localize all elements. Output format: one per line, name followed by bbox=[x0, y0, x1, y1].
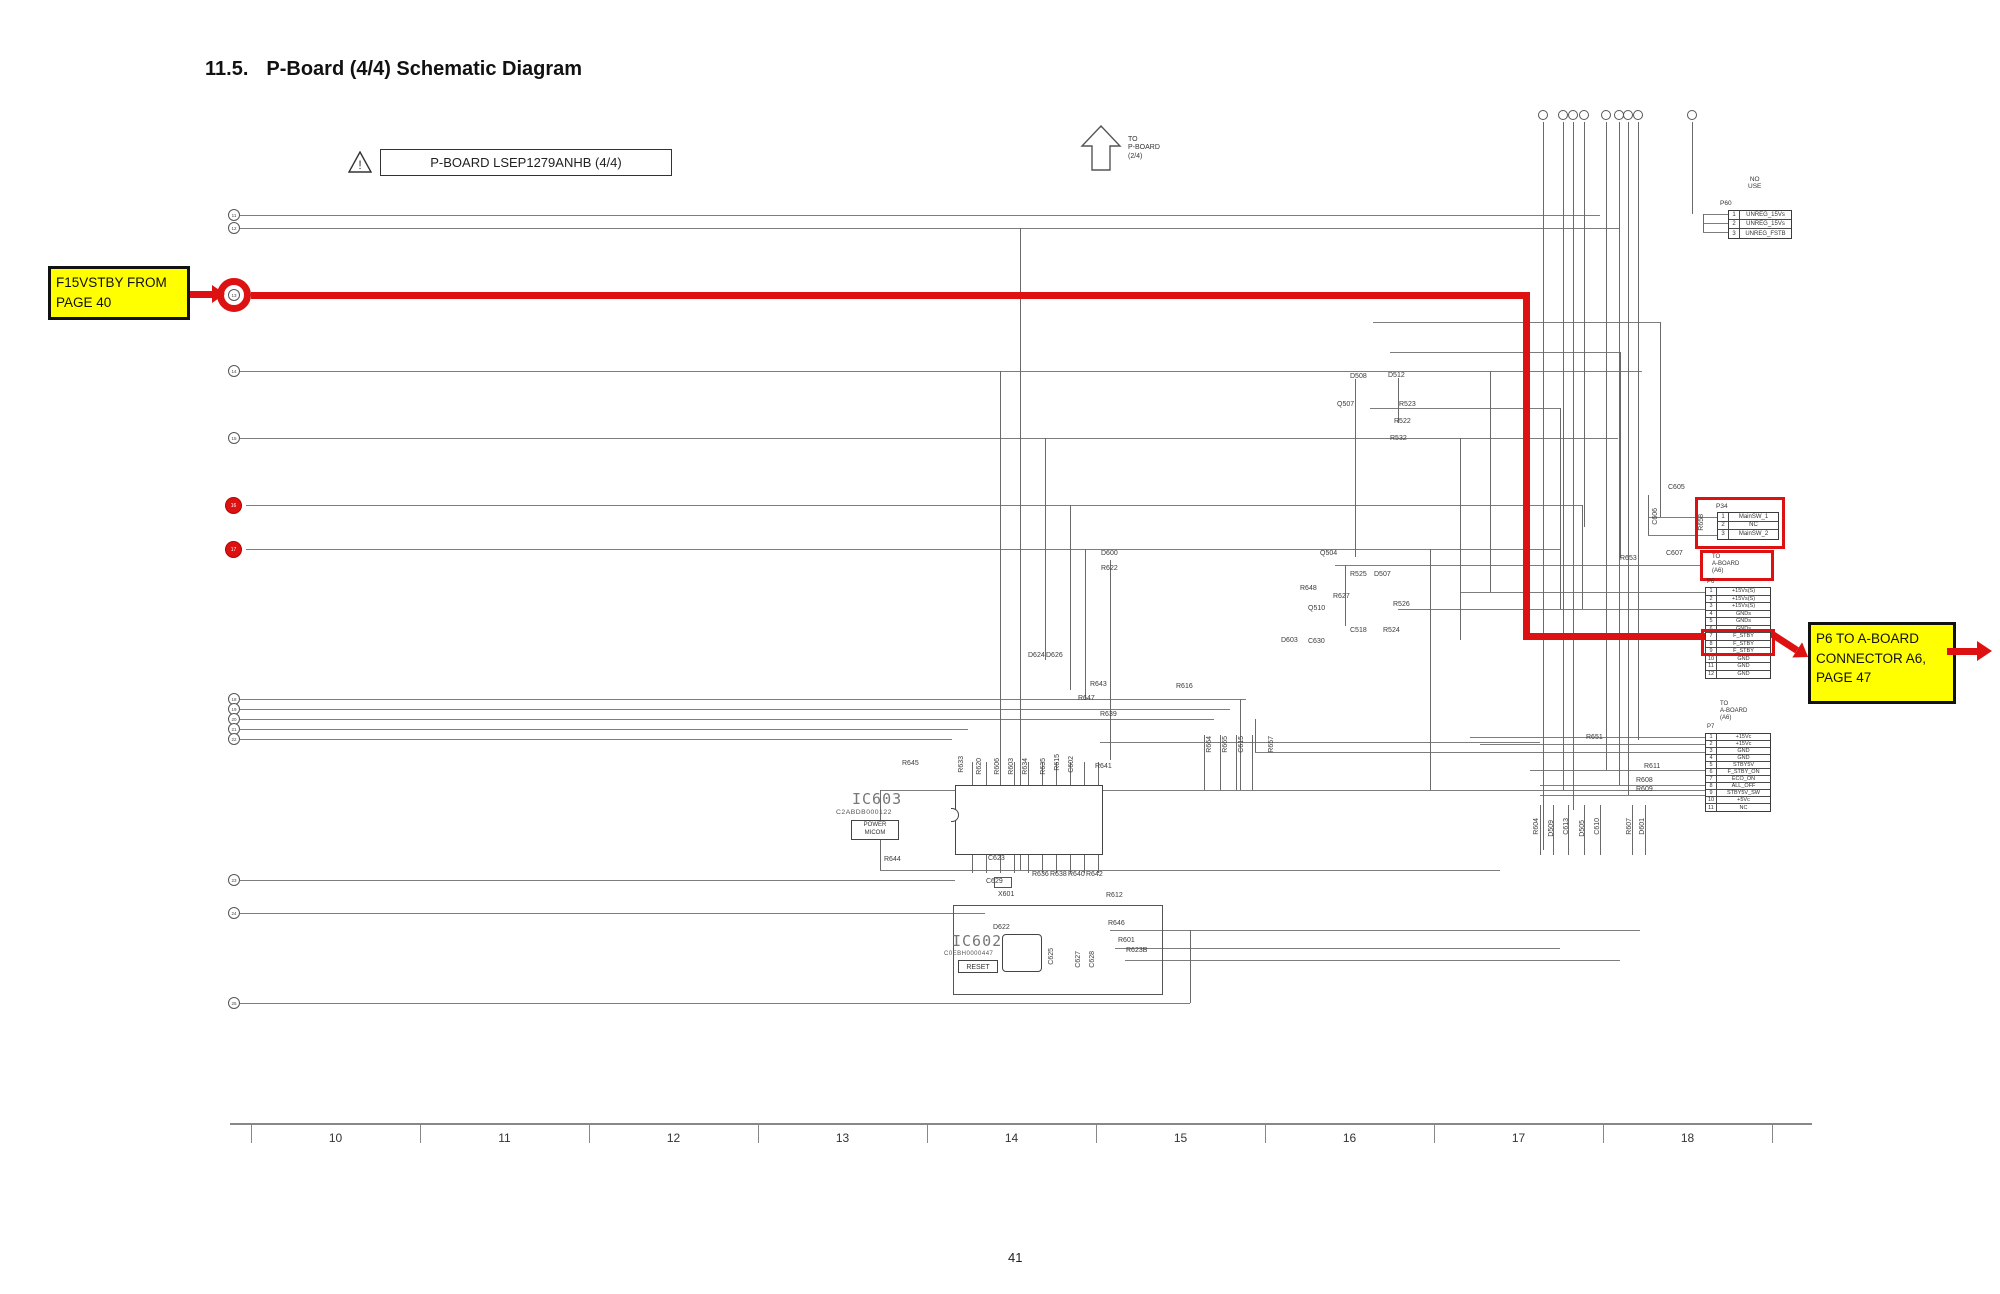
component-label: R639 bbox=[1100, 711, 1117, 718]
pin-number: 1 bbox=[1706, 734, 1717, 740]
wire bbox=[1703, 214, 1704, 232]
pin-number: 3 bbox=[1718, 530, 1729, 539]
wire bbox=[240, 729, 968, 730]
wire bbox=[1480, 744, 1705, 745]
wire bbox=[246, 505, 1582, 506]
connector-row: 4GNDs bbox=[1706, 611, 1770, 619]
signal-name: +15Vc bbox=[1717, 741, 1770, 747]
wire bbox=[1070, 505, 1071, 690]
wire-ref-circle bbox=[1687, 110, 1697, 120]
wire bbox=[1115, 948, 1560, 949]
wire-ref-circle: 25 bbox=[228, 997, 240, 1009]
wire bbox=[1236, 735, 1237, 790]
p6-dest-label: TOA-BOARD(A6) bbox=[1712, 554, 1739, 575]
wire bbox=[246, 549, 1560, 550]
p60-name: P60 bbox=[1720, 200, 1732, 207]
component-label: R648 bbox=[1300, 585, 1317, 592]
crystal-x601 bbox=[994, 877, 1012, 888]
pin-number: 4 bbox=[1706, 611, 1717, 618]
p6-rows-7-9-highlight bbox=[1701, 629, 1775, 656]
component-label: R524 bbox=[1383, 627, 1400, 634]
pin-number: 1 bbox=[1706, 588, 1717, 595]
pin-number: 3 bbox=[1706, 603, 1717, 610]
component-label: D505 bbox=[1579, 820, 1586, 837]
component-label: R604 bbox=[1533, 818, 1540, 835]
wire-ref-circle: 16 bbox=[225, 497, 242, 514]
wire bbox=[1582, 505, 1583, 609]
component-label: C518 bbox=[1350, 627, 1367, 634]
component-label: D600 bbox=[1101, 550, 1118, 557]
ic602-function: RESET bbox=[958, 960, 998, 973]
wire bbox=[1430, 549, 1431, 790]
component-label: R523 bbox=[1399, 401, 1416, 408]
p34-name: P34 bbox=[1716, 503, 1728, 510]
connector-row: 5STBY5V bbox=[1706, 762, 1770, 769]
wire bbox=[1020, 228, 1021, 870]
component-label: R525 bbox=[1350, 571, 1367, 578]
ruler-tick bbox=[589, 1123, 590, 1143]
ruler-number: 10 bbox=[329, 1131, 342, 1145]
signal-name: +5Vc bbox=[1717, 797, 1770, 803]
signal-name: UNREG_15Vs bbox=[1740, 221, 1791, 227]
wire-ref-circle bbox=[1601, 110, 1611, 120]
connector-row: 3+15Vs(S) bbox=[1706, 603, 1770, 611]
wire bbox=[1100, 742, 1540, 743]
wire-ref-circle: 23 bbox=[228, 874, 240, 886]
schematic-page: 11.5.P-Board (4/4) Schematic Diagram ! P… bbox=[0, 0, 2000, 1294]
pin-number: 10 bbox=[1706, 656, 1717, 663]
component-label: Q504 bbox=[1320, 550, 1337, 557]
wire bbox=[1560, 408, 1561, 549]
ruler-tick bbox=[1603, 1123, 1604, 1143]
component-label: R612 bbox=[1106, 892, 1123, 899]
component-label: R647 bbox=[1078, 695, 1095, 702]
component-label: D626 bbox=[1046, 652, 1063, 659]
signal-name: STBY5V bbox=[1717, 762, 1770, 768]
component-label: D512 bbox=[1388, 372, 1405, 379]
up-arrow-icon bbox=[1080, 124, 1122, 172]
component-label: C610 bbox=[1594, 818, 1601, 835]
connector-row: 3MainSW_2 bbox=[1718, 530, 1778, 539]
signal-name: STBY5V_SW bbox=[1717, 790, 1770, 796]
signal-name: NC bbox=[1717, 805, 1770, 811]
ruler-number: 11 bbox=[498, 1131, 510, 1145]
wire bbox=[1563, 122, 1564, 790]
pin-number: 1 bbox=[1718, 513, 1729, 521]
signal-name: ECO_ON bbox=[1717, 776, 1770, 782]
wire-ref-circle: 14 bbox=[228, 365, 240, 377]
ruler-tick bbox=[251, 1123, 252, 1143]
wire-ref-circle: 15 bbox=[228, 432, 240, 444]
signal-name: +15Vs(S) bbox=[1717, 588, 1770, 594]
wire bbox=[240, 438, 1618, 439]
ic-pin-stub bbox=[986, 762, 987, 786]
wire bbox=[1255, 719, 1256, 752]
component-label: R609 bbox=[1636, 786, 1653, 793]
wire bbox=[1085, 549, 1086, 700]
highlight-line-horizontal bbox=[251, 292, 1530, 299]
pin-number: 2 bbox=[1706, 596, 1717, 603]
component-label: Q507 bbox=[1337, 401, 1354, 408]
wire bbox=[1606, 122, 1607, 770]
signal-name: UNREG_FSTB bbox=[1740, 231, 1791, 237]
wire bbox=[1540, 795, 1705, 796]
signal-name: MainSW_2 bbox=[1729, 531, 1778, 537]
p7-name: P7 bbox=[1707, 724, 1714, 731]
wire bbox=[1110, 560, 1111, 760]
ic-pin-stub bbox=[1014, 855, 1015, 873]
wire-ref-circle: 17 bbox=[225, 541, 242, 558]
ic603-function: POWERMICOM bbox=[851, 820, 899, 840]
wire bbox=[1000, 371, 1001, 790]
wire-ref-circle: 22 bbox=[228, 733, 240, 745]
wire bbox=[1390, 352, 1620, 353]
component-label: D507 bbox=[1374, 571, 1391, 578]
component-label: R645 bbox=[902, 760, 919, 767]
ruler-tick bbox=[1096, 1123, 1097, 1143]
pin-number: 9 bbox=[1706, 790, 1717, 796]
component-label: R522 bbox=[1394, 418, 1411, 425]
connector-p7-table: 1+15Vc2+15Vc3GND4GND5STBY5V6F_STBY_ON7EC… bbox=[1705, 733, 1771, 812]
component-label: R622 bbox=[1101, 565, 1118, 572]
component-label: R665 bbox=[1222, 736, 1229, 753]
to-pboard-label: TO P-BOARD (2/4) bbox=[1128, 136, 1160, 161]
ruler-number: 16 bbox=[1343, 1131, 1356, 1145]
board-label: P-BOARD LSEP1279ANHB (4/4) bbox=[380, 149, 672, 176]
component-label: C613 bbox=[1563, 818, 1570, 835]
signal-name: GND bbox=[1717, 656, 1770, 662]
wire bbox=[240, 709, 1230, 710]
wire bbox=[1638, 122, 1639, 740]
ic603-part: C2ABDB000122 bbox=[836, 809, 892, 816]
component-label: R611 bbox=[1644, 763, 1660, 770]
wire bbox=[1560, 549, 1561, 609]
wire bbox=[1540, 785, 1705, 786]
wire bbox=[1125, 960, 1620, 961]
pin-number: 2 bbox=[1729, 220, 1740, 228]
component-label: R633 bbox=[958, 756, 965, 773]
ruler-line bbox=[230, 1123, 1812, 1125]
ruler-tick bbox=[927, 1123, 928, 1143]
wire bbox=[1460, 438, 1461, 640]
connector-p34-table: 1MainSW_12NC3MainSW_2 bbox=[1717, 512, 1779, 540]
ic602-outline bbox=[953, 905, 1163, 995]
wire bbox=[1355, 379, 1356, 557]
wire bbox=[1648, 495, 1649, 535]
wire bbox=[1703, 232, 1728, 233]
wire bbox=[240, 228, 1620, 229]
signal-name: GNDs bbox=[1717, 611, 1770, 617]
component-label: R608 bbox=[1636, 777, 1653, 784]
component-label: R615 bbox=[1054, 754, 1061, 771]
pin-number: 10 bbox=[1706, 797, 1717, 803]
connector-row: 3GND bbox=[1706, 748, 1770, 755]
wire bbox=[1543, 122, 1544, 850]
component-label: R526 bbox=[1393, 601, 1410, 608]
connector-row: 10GND bbox=[1706, 656, 1770, 664]
wire bbox=[1220, 735, 1221, 790]
wire bbox=[1373, 322, 1660, 323]
wire bbox=[240, 719, 1214, 720]
page-title: 11.5.P-Board (4/4) Schematic Diagram bbox=[205, 58, 582, 81]
wire bbox=[1628, 122, 1629, 795]
connector-row: 1+15Vs(S) bbox=[1706, 588, 1770, 596]
component-label: D508 bbox=[1350, 373, 1367, 380]
pin-number: 5 bbox=[1706, 762, 1717, 768]
pin-number: 12 bbox=[1706, 671, 1717, 679]
wire-ref-circle bbox=[1568, 110, 1578, 120]
wire bbox=[1584, 122, 1585, 527]
callout-f15vstby: F15VSTBY FROM PAGE 40 bbox=[48, 266, 190, 320]
component-label: R627 bbox=[1333, 593, 1350, 600]
ruler-number: 18 bbox=[1681, 1131, 1694, 1145]
connector-row: 2UNREG_15Vs bbox=[1729, 220, 1791, 229]
wire bbox=[1620, 352, 1621, 558]
signal-name: GND bbox=[1717, 663, 1770, 669]
component-label: R636 bbox=[1032, 871, 1049, 878]
wire bbox=[1335, 565, 1700, 566]
signal-name: +15Vs(S) bbox=[1717, 603, 1770, 609]
component-label: R638 bbox=[1050, 871, 1067, 878]
component-label: R616 bbox=[1176, 683, 1193, 690]
signal-name: +15Vc bbox=[1717, 734, 1770, 740]
component-label: C605 bbox=[1668, 484, 1685, 491]
component-label: R643 bbox=[1090, 681, 1107, 688]
ic-pin-stub bbox=[972, 762, 973, 786]
ic-pin-stub bbox=[972, 855, 973, 873]
component-label: C623 bbox=[988, 855, 1005, 862]
wire-ref-circle bbox=[1633, 110, 1643, 120]
ic-pin-stub bbox=[986, 855, 987, 873]
connector-row: 11GND bbox=[1706, 663, 1770, 671]
connector-row: 2NC bbox=[1718, 522, 1778, 531]
wire bbox=[1573, 122, 1574, 810]
connector-row: 12GND bbox=[1706, 671, 1770, 679]
svg-text:!: ! bbox=[358, 158, 361, 172]
pin-number: 2 bbox=[1706, 741, 1717, 747]
component-label: R634 bbox=[1022, 758, 1029, 775]
connector-row: 11NC bbox=[1706, 804, 1770, 811]
component-label: R642 bbox=[1086, 871, 1103, 878]
signal-name: ALL_OFF bbox=[1717, 783, 1770, 789]
ic602-part: C0EBH0000447 bbox=[944, 951, 993, 957]
wire bbox=[1490, 371, 1491, 592]
section-number: 11.5. bbox=[205, 58, 248, 80]
ic602-ref: IC602 bbox=[952, 932, 1002, 950]
ruler-tick bbox=[1265, 1123, 1266, 1143]
connector-row: 3UNREG_FSTB bbox=[1729, 229, 1791, 238]
component-label: R607 bbox=[1626, 818, 1633, 835]
p60-no-use-label: NOUSE bbox=[1748, 176, 1761, 191]
pin-number: 5 bbox=[1706, 618, 1717, 625]
pin-number: 7 bbox=[1706, 776, 1717, 782]
component-label: D601 bbox=[1639, 818, 1646, 835]
wire bbox=[240, 371, 1642, 372]
wire bbox=[240, 880, 955, 881]
component-label: C607 bbox=[1666, 550, 1683, 557]
connector-row: 4GND bbox=[1706, 755, 1770, 762]
component-label: R653 bbox=[1620, 555, 1637, 562]
ruler-number: 14 bbox=[1005, 1131, 1018, 1145]
ruler-number: 13 bbox=[836, 1131, 849, 1145]
pin-number: 3 bbox=[1706, 748, 1717, 754]
connector-p60-table: 1UNREG_15Vs2UNREG_15Vs3UNREG_FSTB bbox=[1728, 210, 1792, 239]
wire bbox=[1204, 735, 1205, 790]
component-label: R620 bbox=[976, 758, 983, 775]
signal-name: UNREG_15Vs bbox=[1740, 212, 1791, 218]
component-label: R657 bbox=[1268, 736, 1275, 753]
ic603-ref: IC603 bbox=[852, 790, 902, 808]
connector-row: 2+15Vs(S) bbox=[1706, 596, 1770, 604]
pin-number: 11 bbox=[1706, 663, 1717, 670]
wire bbox=[1045, 438, 1046, 660]
wire bbox=[240, 913, 985, 914]
signal-name: MainSW_1 bbox=[1729, 514, 1778, 520]
ic603-body bbox=[955, 785, 1103, 855]
ruler-tick bbox=[1434, 1123, 1435, 1143]
wire bbox=[1660, 322, 1661, 517]
component-label: C630 bbox=[1308, 638, 1325, 645]
callout-arrow-shaft bbox=[190, 291, 212, 298]
component-label: D509 bbox=[1548, 820, 1555, 837]
signal-name: GND bbox=[1717, 748, 1770, 754]
connector-row: 10+5Vc bbox=[1706, 797, 1770, 804]
component-label: C606 bbox=[1652, 508, 1659, 525]
pin-number: 4 bbox=[1706, 755, 1717, 761]
pin-number: 6 bbox=[1706, 769, 1717, 775]
connector-row: 9STBY5V_SW bbox=[1706, 790, 1770, 797]
component-label: R606 bbox=[994, 758, 1001, 775]
signal-name: +15Vs(S) bbox=[1717, 596, 1770, 602]
component-label: R651 bbox=[1586, 734, 1603, 741]
page-number: 41 bbox=[1008, 1250, 1022, 1265]
component-label: D624 bbox=[1028, 652, 1045, 659]
pin-number: 2 bbox=[1718, 522, 1729, 530]
warning-triangle-icon: ! bbox=[348, 151, 372, 173]
wire-ref-circle bbox=[1538, 110, 1548, 120]
ruler-tick bbox=[758, 1123, 759, 1143]
p6-name: P6 bbox=[1707, 579, 1714, 586]
callout-arrow-head bbox=[212, 285, 225, 303]
component-label: R641 bbox=[1095, 763, 1112, 770]
ic-pin-stub bbox=[1084, 762, 1085, 786]
pin-number: 3 bbox=[1729, 229, 1740, 238]
ic602-body bbox=[1002, 934, 1042, 972]
wire bbox=[240, 739, 952, 740]
wire bbox=[1530, 770, 1705, 771]
wire-ref-circle bbox=[1623, 110, 1633, 120]
component-label: Q510 bbox=[1308, 605, 1325, 612]
wire bbox=[1190, 930, 1191, 1003]
wire bbox=[240, 699, 1246, 700]
wire bbox=[880, 870, 1500, 871]
wire bbox=[1255, 752, 1705, 753]
pin-number: 1 bbox=[1729, 211, 1740, 219]
connector-row: 5GNDs bbox=[1706, 618, 1770, 626]
offpage-arrow-shaft bbox=[1947, 648, 1977, 655]
signal-name: NC bbox=[1729, 522, 1778, 528]
wire bbox=[240, 215, 1600, 216]
section-name: P-Board (4/4) Schematic Diagram bbox=[266, 58, 582, 80]
wire bbox=[1703, 214, 1728, 215]
connector-row: 1MainSW_1 bbox=[1718, 513, 1778, 522]
component-label: R532 bbox=[1390, 435, 1407, 442]
ic-pin-stub bbox=[1028, 855, 1029, 873]
signal-name: F_STBY_ON bbox=[1717, 769, 1770, 775]
component-label: R644 bbox=[884, 856, 901, 863]
connector-row: 6F_STBY_ON bbox=[1706, 769, 1770, 776]
component-label: C615 bbox=[1238, 736, 1245, 753]
ruler-number: 17 bbox=[1512, 1131, 1525, 1145]
component-label: R664 bbox=[1206, 736, 1213, 753]
wire-ref-circle bbox=[1558, 110, 1568, 120]
pin-number: 11 bbox=[1706, 804, 1717, 811]
connector-row: 1UNREG_15Vs bbox=[1729, 211, 1791, 220]
ruler-number: 15 bbox=[1174, 1131, 1187, 1145]
wire bbox=[1540, 805, 1541, 855]
signal-name: GND bbox=[1717, 755, 1770, 761]
pin-number: 8 bbox=[1706, 783, 1717, 789]
wire-ref-circle: 24 bbox=[228, 907, 240, 919]
x601-label: X601 bbox=[998, 891, 1014, 898]
signal-name: GND bbox=[1717, 671, 1770, 677]
component-label: C602 bbox=[1068, 756, 1075, 773]
wire bbox=[1252, 735, 1253, 790]
highlight-line-to-p6 bbox=[1523, 633, 1705, 640]
wire-ref-circle: 11 bbox=[228, 209, 240, 221]
component-label: R635 bbox=[1040, 758, 1047, 775]
connector-row: 8ALL_OFF bbox=[1706, 783, 1770, 790]
wire-ref-circle: 12 bbox=[228, 222, 240, 234]
ruler-tick bbox=[420, 1123, 421, 1143]
signal-name: GNDs bbox=[1717, 618, 1770, 624]
wire bbox=[1398, 609, 1705, 610]
highlight-line-vertical bbox=[1523, 292, 1530, 640]
wire bbox=[240, 1003, 1190, 1004]
connector-row: 2+15Vc bbox=[1706, 741, 1770, 748]
component-label: R640 bbox=[1068, 871, 1085, 878]
p7-dest-label: TOA-BOARD(A6) bbox=[1720, 701, 1747, 722]
offpage-arrow-head bbox=[1977, 641, 1992, 661]
component-label: D603 bbox=[1281, 637, 1298, 644]
component-label: R603 bbox=[1008, 758, 1015, 775]
ruler-number: 12 bbox=[667, 1131, 680, 1145]
connector-row: 7ECO_ON bbox=[1706, 776, 1770, 783]
wire bbox=[1703, 223, 1728, 224]
connector-row: 1+15Vc bbox=[1706, 734, 1770, 741]
ruler-tick bbox=[1772, 1123, 1773, 1143]
callout-p6-aboard: P6 TO A-BOARD CONNECTOR A6, PAGE 47 bbox=[1808, 622, 1956, 704]
wire-ref-circle bbox=[1579, 110, 1589, 120]
wire bbox=[1692, 122, 1693, 214]
